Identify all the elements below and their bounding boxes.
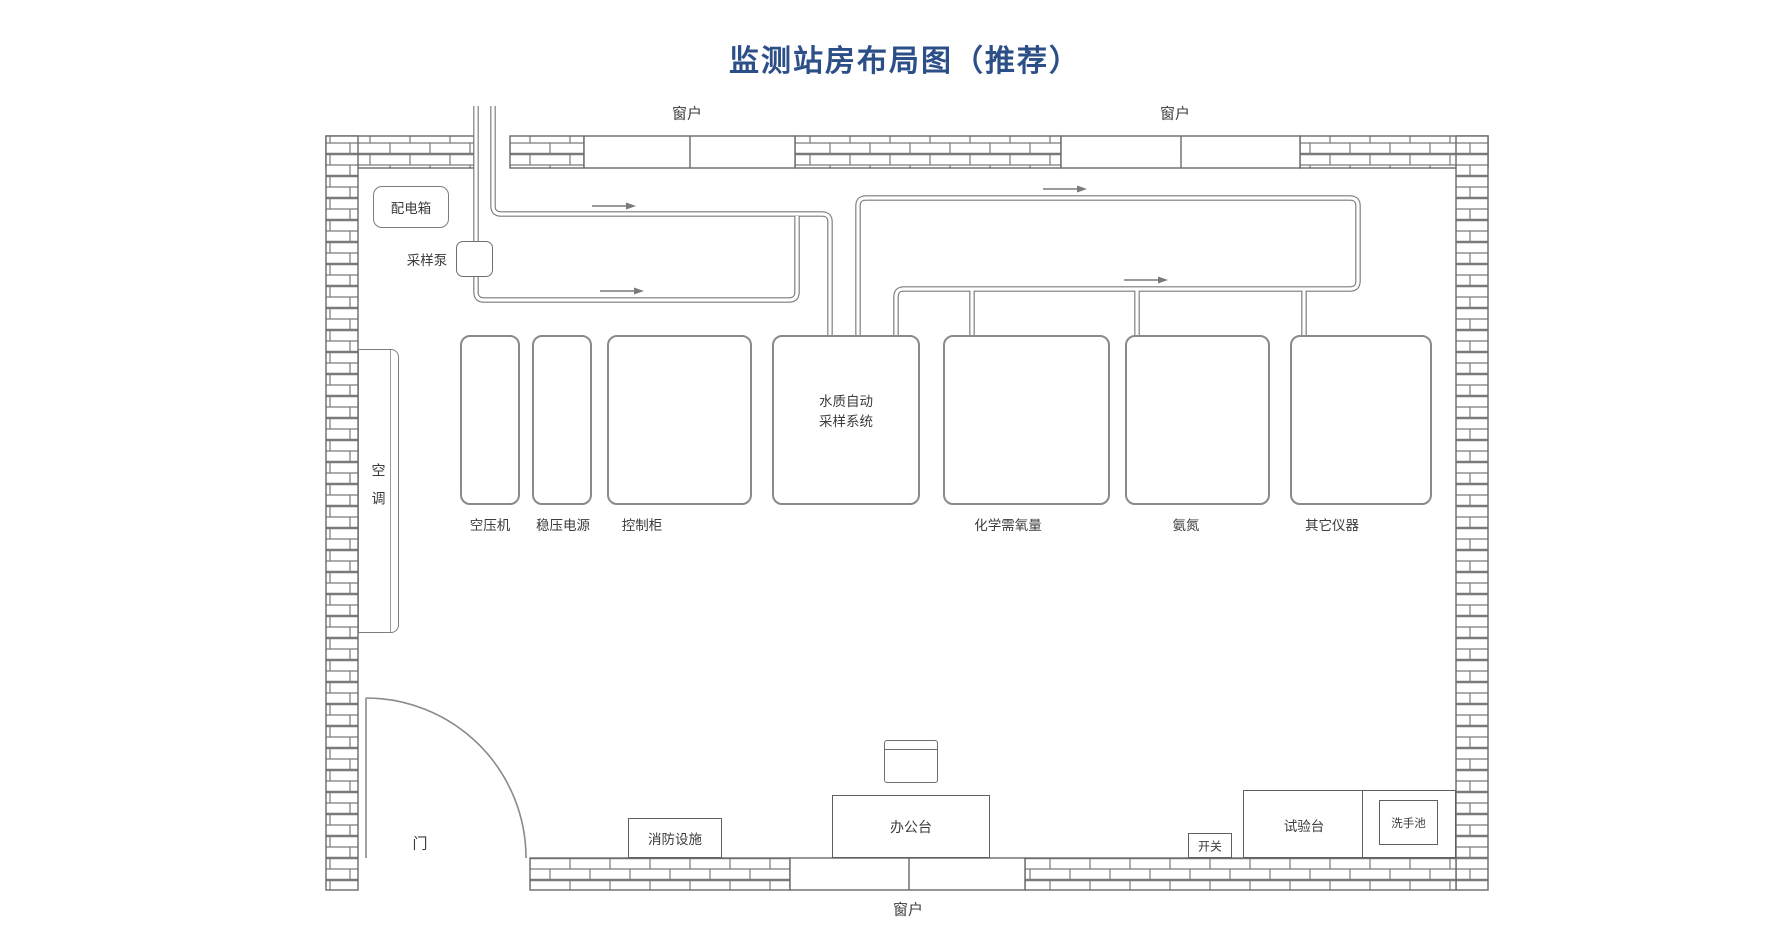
sampling-pump [456,241,493,277]
test-bench-label: 试验台 [1284,815,1325,835]
box-air-compressor [460,335,520,505]
distribution-box: 配电箱 [373,186,449,228]
box-cod-analyzer [943,335,1110,505]
air-compressor-label: 空压机 [470,514,511,534]
office-desk-label: 办公台 [890,817,932,837]
water-sampling-system-label: 水质自动 采样系统 [774,392,918,432]
window-bottom-label: 窗户 [893,899,923,920]
window-top-1-label: 窗户 [672,103,702,124]
chair [884,740,938,783]
air-conditioner-edge [390,350,391,632]
window-top-2-label: 窗户 [1160,103,1190,124]
chair-back [885,741,937,750]
control-cabinet-label: 控制柜 [622,514,663,534]
switch-label: 开关 [1198,837,1222,854]
fire-equipment: 消防设施 [628,818,722,858]
air-conditioner: 空调 [358,349,399,633]
voltage-stabilizer-label: 稳压电源 [536,514,590,534]
fire-equipment-label: 消防设施 [648,828,702,848]
box-voltage-stabilizer [532,335,592,505]
sampling-pump-label: 采样泵 [407,249,448,269]
sink: 洗手池 [1379,800,1438,845]
office-desk: 办公台 [832,795,990,858]
door-label: 门 [412,833,427,854]
door [366,698,526,858]
other-instruments-label: 其它仪器 [1305,514,1359,534]
cod-analyzer-label: 化学需氧量 [974,514,1042,534]
box-water-sampling-system: 水质自动 采样系统 [772,335,920,505]
window-top-1 [584,136,795,168]
switch-box: 开关 [1188,833,1232,858]
air-conditioner-label: 空调 [369,463,389,519]
sink-label: 洗手池 [1391,815,1426,831]
ammonia-analyzer-label: 氨氮 [1173,514,1200,534]
window-top-2 [1061,136,1300,168]
box-ammonia-analyzer [1125,335,1270,505]
floor-plan-canvas: 监测站房布局图（推荐） 窗户 窗户 窗户 门 配电箱 采样泵 空调 水质自动 采… [0,0,1772,943]
box-control-cabinet [607,335,752,505]
flow-arrows [592,186,1168,295]
box-other-instruments [1290,335,1432,505]
distribution-box-label: 配电箱 [391,197,432,217]
window-bottom [790,858,1025,890]
test-bench-divider [1362,791,1363,857]
page-title: 监测站房布局图（推荐） [729,36,1081,80]
